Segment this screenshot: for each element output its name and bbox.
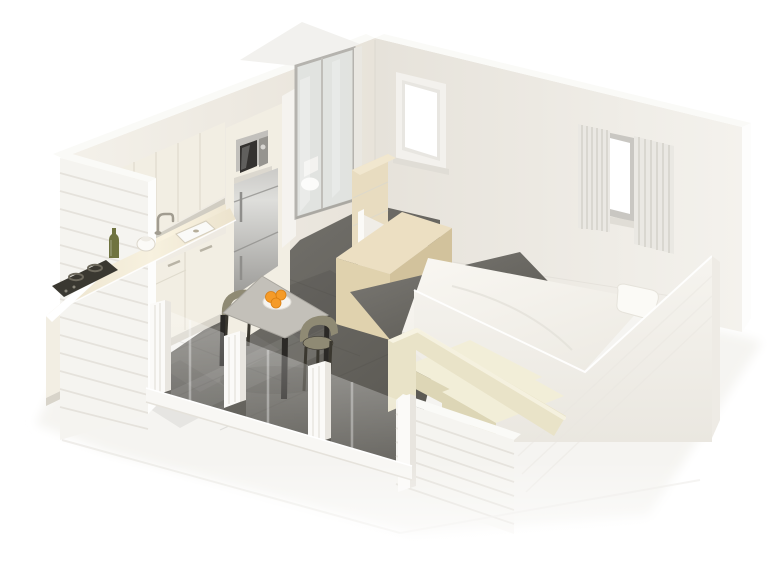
curtain-left xyxy=(578,124,610,232)
mullion-2 xyxy=(224,331,246,408)
mullion-1-side xyxy=(165,300,171,392)
back-right-wall-end-cut xyxy=(742,123,751,332)
cooktop-knob-2 xyxy=(73,286,76,289)
se-facade-corner-cut xyxy=(712,256,720,438)
cooktop-knob-1 xyxy=(65,290,68,293)
window-plain-glass xyxy=(405,84,437,157)
microwave-dial xyxy=(261,145,266,150)
mullion-1-front xyxy=(150,300,165,398)
sink-drain xyxy=(193,230,199,233)
mullion-2-side xyxy=(240,331,246,402)
microwave-control-panel xyxy=(259,136,268,167)
faucet-base xyxy=(155,231,162,235)
mullion-3-front xyxy=(308,361,325,447)
bathroom-left-panel xyxy=(282,88,296,248)
curtain-right xyxy=(634,136,674,254)
floorplan-scene xyxy=(0,0,768,576)
mullion-3-side xyxy=(325,361,331,440)
bottom-fade xyxy=(0,460,768,576)
orange-3 xyxy=(271,298,281,308)
mullion-2-front xyxy=(224,331,240,408)
mullion-3 xyxy=(308,361,331,447)
chair-front-right-seat xyxy=(303,337,333,350)
window-plain xyxy=(393,72,449,175)
window-curtained-glass xyxy=(610,138,630,214)
glass-reflection-2 xyxy=(332,59,340,198)
kettle xyxy=(137,237,155,252)
shower-enclosure xyxy=(296,48,354,218)
glass-reflection-1 xyxy=(300,76,310,212)
kettle-lid xyxy=(141,237,151,242)
floorplan-render xyxy=(0,0,768,576)
mullion-1 xyxy=(150,300,171,398)
